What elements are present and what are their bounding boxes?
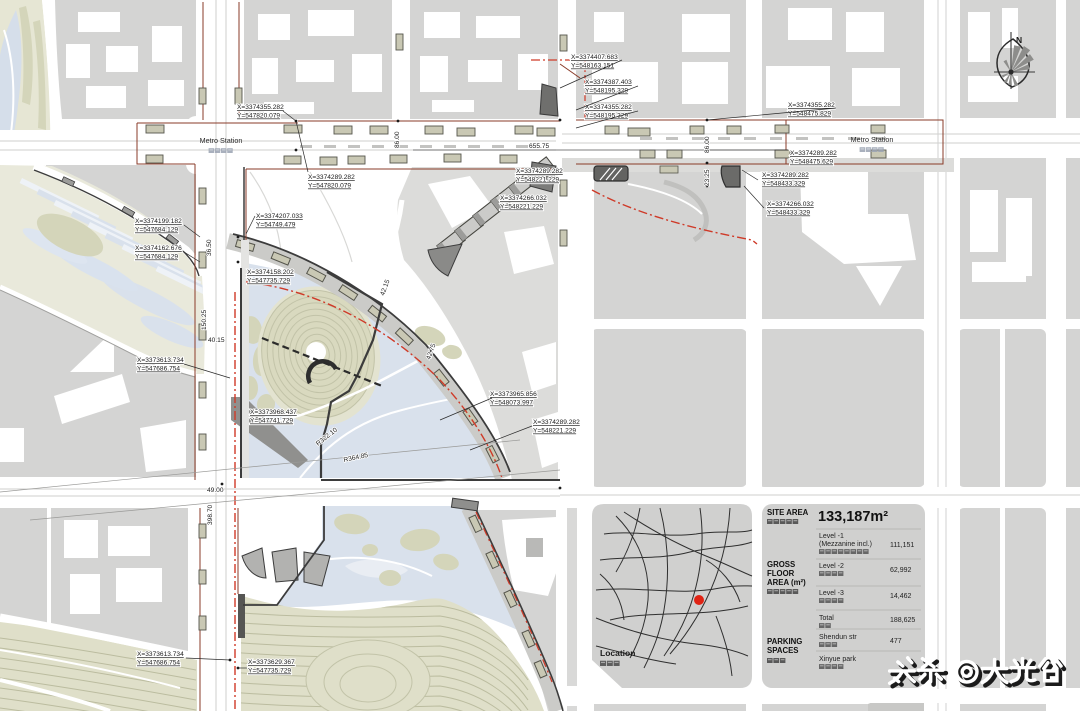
svg-text:Y=547684.129: Y=547684.129 <box>135 254 178 261</box>
svg-text:Metro Station: Metro Station <box>851 135 894 144</box>
svg-text:FLOOR: FLOOR <box>767 569 795 578</box>
svg-text:X=3374289.282: X=3374289.282 <box>516 168 563 175</box>
svg-text:Y=548195.329: Y=548195.329 <box>585 113 628 120</box>
svg-text:Y=547741.729: Y=547741.729 <box>250 418 293 425</box>
svg-text:Y=548221.229: Y=548221.229 <box>533 428 576 435</box>
svg-text:40.15: 40.15 <box>208 337 225 344</box>
svg-text:Y=548073.997: Y=548073.997 <box>490 400 533 407</box>
svg-text:86.00: 86.00 <box>394 131 401 148</box>
svg-text:477: 477 <box>890 638 902 645</box>
svg-text:Level -1: Level -1 <box>819 533 844 540</box>
svg-text:Y=548475.629: Y=548475.629 <box>790 159 833 166</box>
svg-text:X=3373613.734: X=3373613.734 <box>137 651 184 658</box>
svg-text:X=3374355.282: X=3374355.282 <box>237 104 284 111</box>
svg-text:X=3374289.282: X=3374289.282 <box>762 172 809 179</box>
svg-text:X=3374387.403: X=3374387.403 <box>585 79 632 86</box>
svg-text:Y=548221.229: Y=548221.229 <box>516 177 559 184</box>
svg-text:X=3374199.182: X=3374199.182 <box>135 218 182 225</box>
svg-text:62,992: 62,992 <box>890 567 912 574</box>
svg-text:49.00: 49.00 <box>207 487 224 494</box>
svg-text:655.75: 655.75 <box>529 143 550 150</box>
svg-text:14,462: 14,462 <box>890 593 912 600</box>
svg-text:X=3374355.282: X=3374355.282 <box>585 104 632 111</box>
svg-text:Y=547735.729: Y=547735.729 <box>248 668 291 675</box>
svg-text:X=3374266.032: X=3374266.032 <box>500 195 547 202</box>
svg-text:X=3374407.683: X=3374407.683 <box>571 54 618 61</box>
svg-text:SPACES: SPACES <box>767 646 798 655</box>
svg-text:36.50: 36.50 <box>206 239 213 256</box>
svg-text:Location: Location <box>600 648 635 658</box>
svg-text:X=3373629.367: X=3373629.367 <box>248 659 295 666</box>
svg-text:X=3374355.282: X=3374355.282 <box>788 102 835 109</box>
svg-text:Y=547735.729: Y=547735.729 <box>247 278 290 285</box>
svg-text:150.25: 150.25 <box>201 309 208 330</box>
svg-text:Y=547686.754: Y=547686.754 <box>137 366 180 373</box>
svg-text:133,187m²: 133,187m² <box>818 509 888 525</box>
svg-text:X=3374162.676: X=3374162.676 <box>135 245 182 252</box>
svg-text:X=3374158.202: X=3374158.202 <box>247 269 294 276</box>
svg-text:Y=548433.329: Y=548433.329 <box>762 181 805 188</box>
svg-text:X=3374266.032: X=3374266.032 <box>767 201 814 208</box>
svg-text:(Mezzanine incl.): (Mezzanine incl.) <box>819 541 872 548</box>
svg-text:86.00: 86.00 <box>704 136 711 153</box>
svg-text:111,151: 111,151 <box>890 542 914 549</box>
svg-text:Y=547684.129: Y=547684.129 <box>135 227 178 234</box>
svg-text:23.25: 23.25 <box>704 169 711 186</box>
svg-text:X=3374207.033: X=3374207.033 <box>256 213 303 220</box>
svg-text:Y=54749.479: Y=54749.479 <box>256 222 296 229</box>
svg-text:398.70: 398.70 <box>207 504 214 525</box>
svg-text:PARKING: PARKING <box>767 637 802 646</box>
svg-text:X=3373968.437: X=3373968.437 <box>250 409 297 416</box>
svg-text:Total: Total <box>819 615 834 622</box>
svg-text:Metro Station: Metro Station <box>200 136 243 145</box>
svg-text:X=3373613.734: X=3373613.734 <box>137 357 184 364</box>
svg-text:Shendun str: Shendun str <box>819 634 857 641</box>
svg-text:Y=547686.754: Y=547686.754 <box>137 660 180 667</box>
svg-text:X=3373965.856: X=3373965.856 <box>490 391 537 398</box>
svg-text:GROSS: GROSS <box>767 560 795 569</box>
svg-text:AREA (m²): AREA (m²) <box>767 578 806 587</box>
svg-text:188,625: 188,625 <box>890 617 915 624</box>
svg-text:Y=548221.229: Y=548221.229 <box>500 204 543 211</box>
svg-text:Level -2: Level -2 <box>819 563 844 570</box>
svg-text:X=3374289.282: X=3374289.282 <box>533 419 580 426</box>
svg-text:Xinyue park: Xinyue park <box>819 656 856 663</box>
svg-text:X=3374289.282: X=3374289.282 <box>790 150 837 157</box>
svg-text:Y=547820.079: Y=547820.079 <box>308 183 351 190</box>
svg-text:Level -3: Level -3 <box>819 590 844 597</box>
svg-text:Y=548195.329: Y=548195.329 <box>585 88 628 95</box>
svg-text:Y=547820.079: Y=547820.079 <box>237 113 280 120</box>
svg-text:X=3374289.282: X=3374289.282 <box>308 174 355 181</box>
svg-text:Y=548433.329: Y=548433.329 <box>767 210 810 217</box>
svg-text:SITE AREA: SITE AREA <box>767 508 809 517</box>
